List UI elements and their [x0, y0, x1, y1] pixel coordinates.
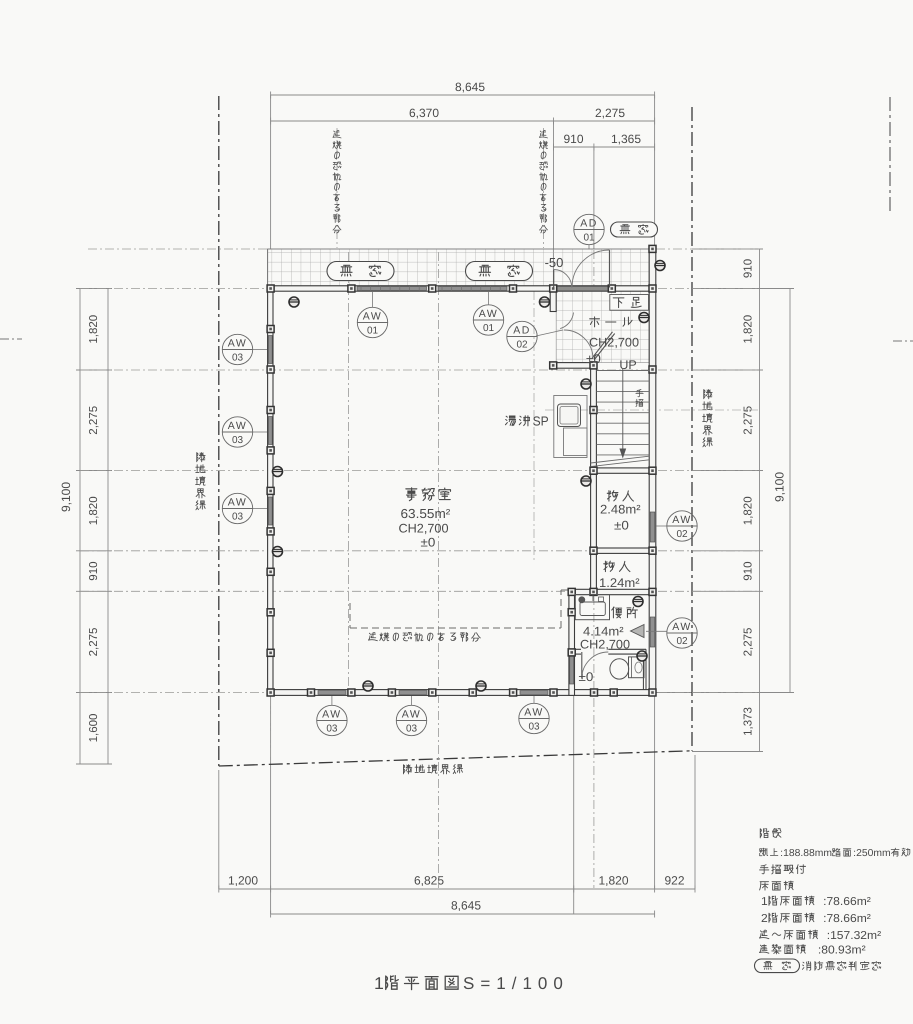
svg-text::250mm: :250mm	[853, 848, 890, 859]
svg-text:01: 01	[367, 326, 379, 337]
svg-text:6,825: 6,825	[414, 874, 444, 888]
svg-text:02: 02	[676, 636, 688, 647]
svg-text:910: 910	[88, 562, 100, 581]
svg-text:02: 02	[516, 340, 528, 351]
svg-text:±0: ±0	[586, 352, 601, 366]
svg-text::80.93m²: :80.93m²	[808, 945, 866, 957]
svg-text:8,645: 8,645	[451, 899, 481, 913]
svg-text:CH2,700: CH2,700	[399, 522, 449, 536]
svg-text:AD: AD	[580, 217, 598, 229]
svg-text:922: 922	[664, 874, 684, 888]
svg-text:9,100: 9,100	[59, 482, 73, 512]
svg-text:4.14m²: 4.14m²	[583, 625, 624, 639]
svg-text:1: 1	[374, 974, 384, 993]
svg-text:AW: AW	[228, 496, 248, 508]
svg-text:1,820: 1,820	[598, 874, 628, 888]
svg-text:2,275: 2,275	[88, 406, 100, 435]
svg-text:2: 2	[761, 913, 768, 925]
svg-text:03: 03	[232, 512, 244, 523]
svg-text:±0: ±0	[579, 670, 594, 684]
svg-text:01: 01	[483, 323, 495, 334]
svg-text:1: 1	[761, 896, 768, 908]
svg-text:6,370: 6,370	[409, 106, 439, 120]
svg-text:63.55m²: 63.55m²	[401, 506, 451, 521]
svg-text:AW: AW	[402, 708, 422, 720]
svg-text:03: 03	[528, 722, 540, 733]
svg-text:±0: ±0	[614, 519, 629, 533]
svg-text:AW: AW	[322, 708, 342, 720]
svg-text:01: 01	[583, 233, 595, 244]
svg-text:±0: ±0	[421, 536, 436, 550]
svg-text:UP: UP	[619, 358, 636, 372]
svg-text:1,820: 1,820	[743, 315, 755, 344]
svg-text::157.32m²: :157.32m²	[820, 930, 881, 942]
svg-text::78.66m²: :78.66m²	[816, 896, 871, 908]
svg-text:S=1/100: S=1/100	[463, 974, 569, 993]
svg-text:-50: -50	[545, 255, 564, 270]
svg-text:9,100: 9,100	[773, 472, 787, 502]
svg-text:1,600: 1,600	[88, 714, 100, 743]
svg-text:AW: AW	[672, 621, 692, 633]
svg-text:03: 03	[326, 724, 338, 735]
svg-text:02: 02	[676, 529, 688, 540]
svg-text::78.66m²: :78.66m²	[816, 913, 871, 925]
svg-text:2,275: 2,275	[88, 628, 100, 657]
svg-text:AW: AW	[363, 310, 383, 322]
svg-text:03: 03	[406, 724, 418, 735]
svg-text:1,820: 1,820	[88, 496, 100, 525]
svg-text:AW: AW	[228, 420, 248, 432]
svg-text:CH2,700: CH2,700	[589, 336, 639, 350]
svg-text:1,820: 1,820	[88, 315, 100, 344]
svg-text:AW: AW	[672, 514, 692, 526]
svg-text:2,275: 2,275	[743, 628, 755, 657]
svg-text:1.24m²: 1.24m²	[599, 576, 640, 590]
svg-text:2,275: 2,275	[595, 106, 625, 120]
svg-text:1,820: 1,820	[743, 496, 755, 525]
svg-text:SP: SP	[533, 414, 549, 429]
svg-text:AW: AW	[479, 308, 499, 320]
svg-text:910: 910	[743, 259, 755, 278]
svg-text:03: 03	[232, 353, 244, 364]
svg-text:AW: AW	[228, 337, 248, 349]
svg-text:1,365: 1,365	[611, 132, 641, 146]
svg-text:910: 910	[563, 132, 583, 146]
svg-text:AD: AD	[513, 324, 531, 336]
svg-text::188.88mm: :188.88mm	[780, 848, 832, 859]
svg-text:AW: AW	[524, 706, 544, 718]
svg-text:1,200: 1,200	[228, 874, 258, 888]
svg-text:8,645: 8,645	[455, 80, 485, 94]
svg-text:CH2,700: CH2,700	[580, 638, 630, 652]
svg-text:2.48m²: 2.48m²	[600, 503, 641, 517]
svg-text:03: 03	[232, 435, 244, 446]
svg-text:1,373: 1,373	[743, 707, 755, 736]
svg-text:910: 910	[743, 562, 755, 581]
